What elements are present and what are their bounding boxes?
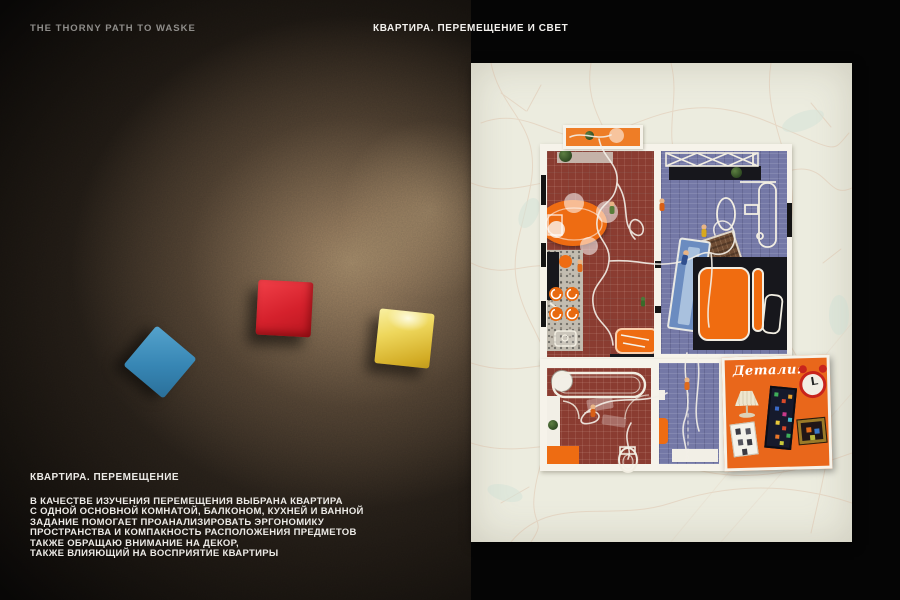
people-figures <box>577 198 706 417</box>
caption-line: ТАКЖЕ ВЛИЯЮЩИЙ НА ВОСПРИЯТИЕ КВАРТИРЫ <box>30 549 364 559</box>
red-tile <box>256 280 314 338</box>
wall-accents <box>541 175 792 327</box>
details-card: Детали: <box>722 355 833 472</box>
clock-bell-icon <box>819 365 827 373</box>
lamp-base <box>739 413 755 418</box>
note-card-thumbnail <box>730 421 759 457</box>
lamp-icon <box>734 390 758 406</box>
portfolio-slide: THE THORNY PATH TO WASKE КВАРТИРА. ПЕРЕМ… <box>0 0 900 600</box>
bathroom-outlines <box>553 373 649 472</box>
details-card-label: Детали: <box>733 362 803 379</box>
poster-thumbnail <box>764 386 797 450</box>
page-title: КВАРТИРА. ПЕРЕМЕЩЕНИЕ И СВЕТ <box>373 23 568 34</box>
caption-title: КВАРТИРА. ПЕРЕМЕЩЕНИЕ <box>30 472 364 483</box>
plan-overlay <box>471 63 852 542</box>
bedroom-outlines <box>717 153 783 334</box>
wardrobe-outline <box>666 153 758 166</box>
moodboard-panel: Детали: <box>471 63 852 542</box>
yellow-tile <box>374 308 434 368</box>
picture-frame-icon <box>797 418 826 444</box>
project-title: THE THORNY PATH TO WASKE <box>30 23 196 34</box>
blue-tile <box>123 325 196 398</box>
caption-block: КВАРТИРА. ПЕРЕМЕЩЕНИЕ В КАЧЕСТВЕ ИЗУЧЕНИ… <box>30 472 364 559</box>
